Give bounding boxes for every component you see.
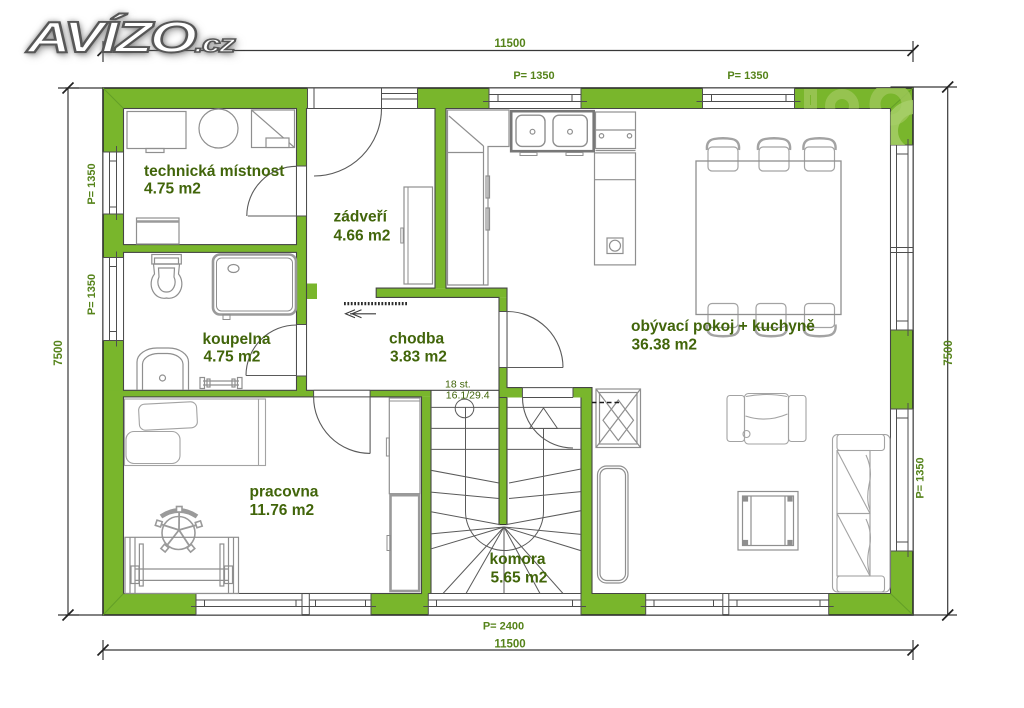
svg-text:obývací pokoj + kuchyně: obývací pokoj + kuchyně [631, 318, 815, 335]
svg-text:P= 1350: P= 1350 [86, 274, 98, 315]
svg-text:7500: 7500 [53, 340, 65, 366]
svg-text:komora: komora [490, 551, 546, 568]
svg-text:3.83 m2: 3.83 m2 [390, 349, 447, 366]
svg-text:11500: 11500 [494, 38, 525, 50]
svg-text:5.65 m2: 5.65 m2 [491, 570, 548, 587]
svg-text:36.38 m2: 36.38 m2 [632, 337, 698, 354]
svg-text:P= 1350: P= 1350 [86, 163, 98, 204]
svg-text:P= 1350: P= 1350 [915, 457, 927, 498]
svg-text:P= 1350: P= 1350 [727, 70, 768, 82]
svg-text:11.76 m2: 11.76 m2 [250, 502, 315, 519]
svg-text:pracovna: pracovna [250, 484, 319, 501]
svg-text:P= 2400: P= 2400 [483, 621, 524, 633]
svg-text:P= 1350: P= 1350 [513, 70, 554, 82]
svg-text:16.1/29.4: 16.1/29.4 [446, 390, 490, 402]
svg-text:technická místnost: technická místnost [144, 163, 284, 180]
svg-text:chodba: chodba [389, 331, 444, 348]
svg-text:koupelna: koupelna [203, 331, 271, 348]
svg-text:4.75 m2: 4.75 m2 [144, 181, 201, 198]
svg-text:11500: 11500 [494, 639, 525, 651]
svg-text:zádveří: zádveří [334, 209, 388, 226]
svg-text:4.75 m2: 4.75 m2 [204, 349, 261, 366]
svg-text:7500: 7500 [943, 340, 955, 366]
svg-text:4.66 m2: 4.66 m2 [334, 228, 391, 245]
